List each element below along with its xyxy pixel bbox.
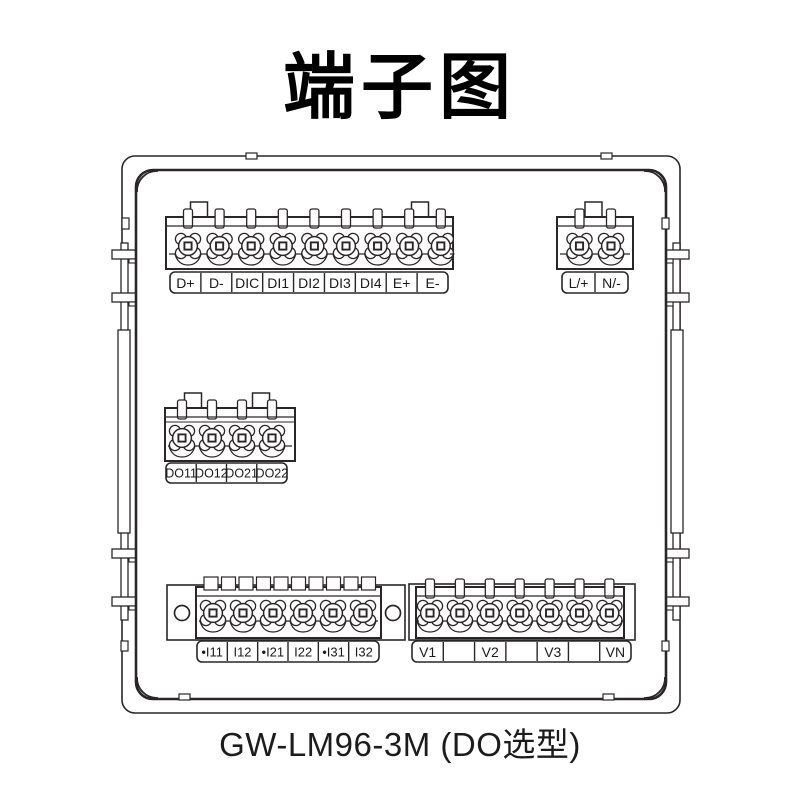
terminal-label-strip: DO11DO12DO21DO22	[165, 463, 288, 483]
terminal-contact	[567, 600, 592, 625]
terminal-screw-slot	[299, 609, 306, 616]
wire-clamp-tab	[310, 209, 319, 228]
terminal-label: DI1	[267, 275, 289, 291]
terminal-label: •I11	[201, 645, 223, 660]
terminal-label: DO21	[225, 467, 258, 481]
terminal-contact	[229, 425, 254, 450]
terminal-screw-slot	[208, 434, 215, 441]
wire-clamp-tab	[208, 400, 217, 419]
terminal-screw-slot	[437, 242, 444, 249]
clip-tab	[112, 549, 137, 558]
terminal-screw-slot	[279, 242, 286, 249]
terminal-label: I32	[355, 645, 373, 660]
clamp-tooth	[222, 577, 236, 590]
edge-bump	[179, 694, 190, 700]
terminal-label: I12	[233, 645, 251, 660]
wire-clamp-tab	[278, 209, 287, 228]
terminal-contact	[477, 600, 502, 625]
terminal-contact	[290, 600, 315, 625]
terminal-label: E-	[426, 275, 440, 291]
clip-tab	[664, 250, 689, 259]
terminal-label: DI2	[298, 275, 320, 291]
terminal-label: L/+	[569, 275, 589, 291]
terminal-contact	[175, 233, 200, 258]
terminal-screw-slot	[516, 609, 523, 616]
terminal-contact	[260, 600, 285, 625]
terminal-screw-slot	[576, 242, 583, 249]
terminal-label: •I21	[262, 645, 285, 660]
terminal-contact	[447, 600, 472, 625]
wire-clamp-tab	[455, 579, 464, 598]
terminal-screw-slot	[216, 242, 223, 249]
wire-clamp-tab	[342, 209, 351, 228]
terminal-contact	[365, 233, 390, 258]
terminal-contact	[597, 600, 622, 625]
wire-clamp-tab	[485, 579, 494, 598]
terminal-screw-slot	[329, 609, 336, 616]
terminal-label: I22	[294, 645, 312, 660]
wire-clamp-tab	[436, 209, 445, 228]
clamp-tooth	[274, 577, 288, 590]
terminal-screw-slot	[359, 609, 366, 616]
terminal-screw-slot	[456, 609, 463, 616]
terminal-label-strip: L/+N/-	[562, 272, 628, 293]
terminal-contact	[259, 425, 284, 450]
terminal-contact	[200, 600, 225, 625]
terminal-label: D-	[209, 275, 224, 291]
terminal-label: DO12	[195, 467, 228, 481]
terminal-screw-slot	[184, 242, 191, 249]
terminal-contact	[207, 233, 232, 258]
terminal-diagram: D+D-DICDI1DI2DI3DI4E+E-L/+N/-DO11DO12DO2…	[0, 0, 800, 800]
wire-clamp-tab	[238, 400, 247, 419]
terminal-screw-slot	[342, 242, 349, 249]
clamp-tooth	[239, 577, 253, 590]
terminal-screw-slot	[248, 242, 255, 249]
terminal-screw-slot	[238, 434, 245, 441]
terminal-contact	[169, 425, 194, 450]
wire-clamp-tab	[405, 209, 414, 228]
terminal-label-strip: D+D-DICDI1DI2DI3DI4E+E-	[170, 272, 448, 293]
edge-bump	[121, 641, 128, 651]
wire-clamp-tab	[373, 209, 382, 228]
terminal-label: VN	[606, 644, 625, 660]
terminal-screw-slot	[209, 609, 216, 616]
current-input-terminal-block: •I11I12•I21I22•I31I32	[167, 577, 405, 662]
clamp-tooth	[309, 577, 323, 590]
label-strip-frame	[412, 641, 631, 662]
terminal-contact	[350, 600, 375, 625]
terminal-label: V1	[419, 644, 436, 660]
clip-tab	[112, 293, 137, 302]
terminal-screw-slot	[606, 609, 613, 616]
terminal-screw-slot	[178, 434, 185, 441]
terminal-contact	[567, 233, 592, 258]
screw-hole	[175, 606, 190, 621]
terminal-screw-slot	[406, 242, 413, 249]
terminal-contact	[333, 233, 358, 258]
terminal-contact	[428, 233, 453, 258]
terminal-contact	[507, 600, 532, 625]
clamp-tooth	[257, 577, 271, 590]
terminal-contact	[598, 233, 623, 258]
wire-clamp-tab	[545, 579, 554, 598]
terminal-screw-slot	[374, 242, 381, 249]
terminal-contact	[230, 600, 255, 625]
wire-clamp-tab	[247, 209, 256, 228]
terminal-screw-slot	[576, 609, 583, 616]
terminal-label: DO22	[256, 467, 289, 481]
edge-bump	[603, 694, 614, 700]
terminal-label-strip: •I11I12•I21I22•I31I32	[197, 641, 379, 662]
wire-clamp-tab	[515, 579, 524, 598]
terminal-label: DI3	[329, 275, 351, 291]
terminal-label: E+	[393, 275, 411, 291]
edge-bump	[601, 153, 612, 159]
terminal-label: •I31	[322, 645, 345, 660]
wire-clamp-tab	[268, 400, 277, 419]
terminal-contact	[397, 233, 422, 258]
clip-tab	[112, 597, 137, 606]
terminal-screw-slot	[426, 609, 433, 616]
wire-clamp-tab	[605, 579, 614, 598]
model-caption: GW-LM96-3M (DO选型)	[0, 722, 800, 768]
terminal-label: N/-	[602, 275, 621, 291]
edge-bump	[246, 153, 257, 159]
clip-tab	[664, 597, 689, 606]
terminal-screw-slot	[486, 609, 493, 616]
terminal-label: V2	[482, 644, 499, 660]
wire-clamp-tab	[178, 400, 187, 419]
terminal-contact	[302, 233, 327, 258]
terminal-screw-slot	[607, 242, 614, 249]
clamp-tooth	[204, 577, 218, 590]
terminal-label: D+	[176, 275, 194, 291]
wire-clamp-tab	[575, 579, 584, 598]
clip-tab	[664, 549, 689, 558]
clamp-tooth	[292, 577, 306, 590]
wire-clamp-tab	[607, 209, 616, 228]
clip-tab	[112, 250, 137, 259]
terminal-screw-slot	[239, 609, 246, 616]
screw-hole	[386, 606, 401, 621]
terminal-contact	[320, 600, 345, 625]
edge-bump	[662, 218, 669, 229]
terminal-diagram-page: 端子图 D+D-DICDI1DI2DI3DI4E+E-L/+N/-DO11DO1…	[0, 0, 800, 800]
edge-bump	[122, 218, 129, 229]
terminal-label: DO11	[165, 467, 197, 481]
terminal-contact	[417, 600, 442, 625]
clamp-tooth	[362, 577, 376, 590]
wire-clamp-tab	[426, 579, 435, 598]
terminal-contact	[199, 425, 224, 450]
terminal-label: DI4	[360, 275, 382, 291]
voltage-input-terminal-block: V1V2V3VN	[409, 579, 635, 662]
clamp-tooth	[327, 577, 341, 590]
wire-clamp-tab	[184, 209, 193, 228]
clip-tab	[664, 293, 689, 302]
terminal-screw-slot	[269, 609, 276, 616]
edge-bump	[662, 641, 669, 651]
wire-clamp-tab	[575, 209, 584, 228]
wire-clamp-tab	[215, 209, 224, 228]
terminal-label: V3	[544, 644, 561, 660]
terminal-label: DIC	[235, 275, 259, 291]
terminal-label-strip: V1V2V3VN	[412, 641, 631, 662]
clamp-tooth	[344, 577, 358, 590]
terminal-screw-slot	[546, 609, 553, 616]
terminal-contact	[239, 233, 264, 258]
terminal-contact	[537, 600, 562, 625]
terminal-screw-slot	[268, 434, 275, 441]
terminal-contact	[270, 233, 295, 258]
terminal-screw-slot	[311, 242, 318, 249]
